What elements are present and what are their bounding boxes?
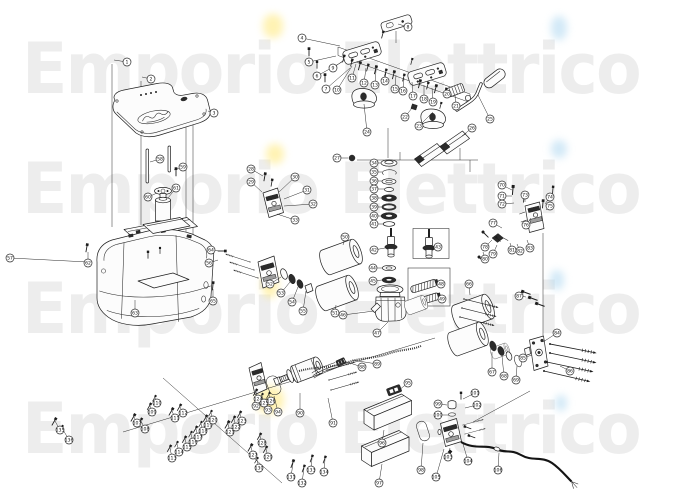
callout-number: 47 bbox=[374, 331, 380, 337]
screw bbox=[481, 230, 489, 238]
callout-number: 110 bbox=[153, 401, 162, 407]
callout-number: 30 bbox=[292, 175, 298, 181]
screw bbox=[365, 63, 369, 71]
callout-leader bbox=[343, 311, 374, 315]
callout-number: 84 bbox=[554, 331, 560, 337]
callout-number: 36 bbox=[371, 179, 377, 185]
callout-number: 14 bbox=[382, 79, 388, 85]
callout-number: 87 bbox=[516, 294, 522, 300]
callout-number: 54 bbox=[289, 300, 295, 306]
power-cable bbox=[461, 442, 572, 482]
callout-number: 122 bbox=[232, 425, 241, 431]
callout-number: 57 bbox=[7, 256, 13, 262]
terminal-connector bbox=[386, 384, 402, 396]
callout-number: 127 bbox=[249, 453, 258, 459]
callout-number: 49 bbox=[439, 297, 445, 303]
exploded-parts-diagram: 1234567891011121314151617181920212223242… bbox=[0, 0, 694, 500]
callout-number: 60 bbox=[145, 195, 151, 201]
valve-bracket bbox=[263, 188, 284, 218]
callout-number: 74 bbox=[547, 195, 553, 201]
callout-number: 43 bbox=[435, 245, 441, 251]
callout-number: 61 bbox=[173, 186, 179, 192]
callout-number: 106 bbox=[494, 468, 503, 474]
callout-number: 72 bbox=[499, 202, 505, 208]
callout-number: 102 bbox=[473, 403, 482, 409]
small-pump bbox=[438, 401, 462, 447]
leader-line bbox=[163, 378, 282, 483]
screw bbox=[263, 172, 267, 181]
callout-number: 28 bbox=[248, 167, 254, 173]
callout-number: 82 bbox=[517, 249, 523, 255]
screw bbox=[410, 58, 414, 65]
heater-element bbox=[143, 146, 190, 234]
callout-number: 134 bbox=[320, 470, 329, 476]
callout-number: 13 bbox=[372, 83, 378, 89]
callout-number: 80 bbox=[482, 257, 488, 263]
callout-number: 65 bbox=[210, 299, 216, 305]
callout-number: 25 bbox=[487, 117, 493, 123]
callout-leader bbox=[10, 258, 88, 262]
callout-number: 120 bbox=[209, 418, 218, 424]
callout-number: 58 bbox=[157, 157, 163, 163]
callout-number: 48 bbox=[438, 282, 444, 288]
callout-number: 59 bbox=[180, 165, 186, 171]
callout-number: 7 bbox=[325, 87, 328, 93]
callout-number: 133 bbox=[307, 468, 316, 474]
screw bbox=[198, 421, 203, 428]
callout-number: 79 bbox=[490, 252, 496, 258]
leader-line bbox=[473, 391, 530, 422]
bolt bbox=[549, 342, 597, 355]
callout-number: 86 bbox=[567, 369, 573, 375]
callout-number: 101 bbox=[471, 391, 480, 397]
pedal-left bbox=[415, 144, 445, 167]
callout-number: 130 bbox=[255, 466, 264, 472]
screw bbox=[208, 410, 213, 417]
callout-number: 103 bbox=[444, 455, 453, 461]
valve-body bbox=[371, 285, 406, 321]
callout-number: 2 bbox=[150, 77, 153, 83]
callout-number: 29 bbox=[248, 180, 254, 186]
bolt bbox=[464, 428, 485, 435]
callout-number: 22 bbox=[402, 115, 408, 121]
top-cover-plate bbox=[113, 83, 210, 137]
callout-number: 93 bbox=[265, 408, 271, 414]
callout-number: 3 bbox=[213, 111, 216, 117]
screw bbox=[308, 47, 311, 56]
pedal-right bbox=[440, 131, 470, 154]
callout-number: 64 bbox=[208, 248, 214, 254]
screw bbox=[460, 392, 462, 400]
lever-knob-right bbox=[421, 109, 446, 129]
water-tank bbox=[97, 229, 214, 325]
callout-number: 108 bbox=[141, 427, 150, 433]
parts bbox=[97, 14, 578, 488]
screw bbox=[433, 84, 438, 93]
parts-diagram-page: Emporio ElettricoEmporio ElettricoEmpori… bbox=[0, 0, 694, 500]
callout-number: 38 bbox=[371, 196, 377, 202]
callout-number: 66 bbox=[466, 282, 472, 288]
callout-number: 8 bbox=[407, 25, 410, 31]
screw bbox=[535, 302, 545, 308]
callout-number: 12 bbox=[361, 81, 367, 87]
callout-number: 6 bbox=[316, 74, 319, 80]
callout-number: 35 bbox=[371, 170, 377, 176]
plunger bbox=[385, 228, 397, 257]
callout-number: 41 bbox=[371, 222, 377, 228]
callout-number: 46 bbox=[340, 313, 346, 319]
callout-number: 31 bbox=[304, 188, 310, 194]
cable-wire-ends bbox=[572, 482, 579, 489]
box-part-lower bbox=[362, 431, 410, 467]
callout-number: 69 bbox=[513, 378, 519, 384]
screw bbox=[322, 455, 327, 463]
callout-number: 77 bbox=[490, 221, 496, 227]
box-part-upper bbox=[364, 394, 412, 430]
screw bbox=[188, 431, 193, 438]
callout-number: 20 bbox=[444, 92, 450, 98]
callout-number: 44 bbox=[370, 266, 376, 272]
callout-number: 78 bbox=[482, 245, 488, 251]
callout-number: 96 bbox=[379, 441, 385, 447]
callout-number: 85 bbox=[520, 356, 526, 362]
callout-number: 1 bbox=[126, 60, 129, 66]
cylinder bbox=[445, 321, 491, 358]
callout-number: 73 bbox=[522, 193, 528, 199]
callout-number: 67 bbox=[489, 370, 495, 376]
spring-1 bbox=[410, 278, 439, 293]
switch-plate-right bbox=[407, 62, 447, 86]
callout-number: 94 bbox=[275, 410, 281, 416]
callout-number: 76 bbox=[523, 223, 529, 229]
callout-number: 9 bbox=[332, 66, 335, 72]
cylinder bbox=[313, 274, 361, 313]
callout-number: 135 bbox=[56, 428, 65, 434]
bolt bbox=[330, 381, 359, 391]
callout-number: 55 bbox=[300, 309, 306, 315]
plunger-detail bbox=[423, 229, 435, 258]
callout-number: 97 bbox=[376, 481, 382, 487]
callout-number: 109 bbox=[148, 410, 157, 416]
screw bbox=[380, 30, 384, 38]
callout-number: 70 bbox=[499, 183, 505, 189]
bolt bbox=[233, 269, 259, 279]
callout-number: 136 bbox=[65, 438, 74, 444]
bolt bbox=[229, 261, 255, 271]
callout-number: 92 bbox=[253, 404, 259, 410]
callout-number: 50 bbox=[342, 235, 348, 241]
screw bbox=[192, 425, 198, 433]
callout-number: 21 bbox=[453, 104, 459, 110]
callout-number: 15 bbox=[392, 87, 398, 93]
callout-number: 90 bbox=[297, 411, 303, 417]
callout-number: 104 bbox=[464, 459, 473, 465]
callout-number: 131 bbox=[287, 475, 296, 481]
callout-number: 42 bbox=[371, 248, 377, 254]
callout-number: 107 bbox=[133, 421, 142, 427]
callout-number: 100 bbox=[434, 413, 443, 419]
callout-number: 68 bbox=[501, 374, 507, 380]
callout-number: 99 bbox=[435, 402, 441, 408]
callout-number: 19 bbox=[430, 100, 436, 106]
callout-leader bbox=[284, 204, 313, 206]
callouts: 1234567891011121314151617181920212223242… bbox=[6, 23, 574, 487]
callout-number: 128 bbox=[258, 441, 267, 447]
callout-number: 81 bbox=[509, 248, 515, 254]
callout-number: 23 bbox=[416, 124, 422, 130]
screw bbox=[270, 178, 274, 186]
screw bbox=[551, 186, 554, 194]
screw bbox=[166, 444, 172, 452]
bolt bbox=[462, 419, 483, 426]
callout-number: 33 bbox=[292, 218, 298, 224]
cable-grommet bbox=[494, 446, 501, 451]
callout-number: 5 bbox=[308, 60, 311, 66]
callout-number: 132 bbox=[298, 481, 307, 487]
callout-number: 118 bbox=[199, 429, 208, 435]
screw bbox=[174, 441, 179, 448]
callout-number: 11 bbox=[349, 76, 355, 82]
callout-number: 52 bbox=[267, 282, 273, 288]
callout-number: 123 bbox=[238, 419, 247, 425]
callout-number: 129 bbox=[264, 455, 273, 461]
callout-number: 18 bbox=[421, 97, 427, 103]
seal-stack bbox=[381, 160, 397, 283]
screw bbox=[467, 434, 475, 439]
callout-number: 37 bbox=[371, 187, 377, 193]
screw bbox=[528, 296, 538, 302]
screw bbox=[51, 417, 58, 426]
cylinder bbox=[317, 238, 365, 277]
callout-number: 34 bbox=[371, 161, 377, 167]
cylinder-small bbox=[403, 294, 429, 315]
screw bbox=[175, 167, 178, 176]
screw bbox=[439, 102, 443, 109]
callout-number: 63 bbox=[132, 311, 138, 317]
bolt bbox=[549, 351, 597, 364]
callout-number: 88 bbox=[359, 365, 365, 371]
callout-number: 26 bbox=[469, 126, 475, 132]
callout-leader bbox=[302, 38, 340, 46]
callout-number: 10 bbox=[334, 88, 340, 94]
screw bbox=[85, 243, 89, 252]
callout-number: 40 bbox=[371, 214, 377, 220]
callout-number: 75 bbox=[547, 204, 553, 210]
callout-number: 112 bbox=[179, 411, 188, 417]
switch-plate-left bbox=[342, 41, 382, 65]
screw bbox=[181, 435, 187, 443]
callout-number: 4 bbox=[301, 36, 304, 42]
callout-number: 89 bbox=[374, 362, 380, 368]
callout-number: 45 bbox=[370, 279, 376, 285]
callout-number: 32 bbox=[310, 202, 316, 208]
box-gasket bbox=[415, 420, 431, 442]
screw bbox=[230, 415, 236, 423]
square-nut bbox=[411, 104, 417, 110]
callout-number: 17 bbox=[410, 94, 416, 100]
screw bbox=[463, 425, 471, 430]
screw bbox=[316, 61, 318, 69]
callout-number: 56 bbox=[206, 261, 212, 267]
callout-number: 105 bbox=[432, 475, 441, 481]
callout-number: 91 bbox=[330, 421, 336, 427]
callout-number: 117 bbox=[194, 435, 203, 441]
callout-number: 113 bbox=[168, 456, 177, 462]
callout-leader bbox=[436, 449, 444, 477]
screw bbox=[425, 81, 429, 89]
ball-fitting bbox=[349, 155, 355, 161]
screw bbox=[309, 454, 314, 462]
callout-number: 126 bbox=[267, 399, 276, 405]
callout-number: 62 bbox=[85, 261, 91, 267]
bolt bbox=[225, 253, 251, 263]
callout-number: 24 bbox=[364, 130, 370, 136]
bolt bbox=[328, 371, 357, 381]
screw bbox=[541, 199, 544, 208]
callout-number: 27 bbox=[334, 156, 340, 162]
callout-number: 98 bbox=[418, 468, 424, 474]
callout-number: 83 bbox=[527, 246, 533, 252]
callout-number: 16 bbox=[400, 89, 406, 95]
screw bbox=[324, 73, 327, 82]
callout-number: 53 bbox=[278, 291, 284, 297]
callout-number: 95 bbox=[405, 381, 411, 387]
callout-number: 71 bbox=[499, 194, 505, 200]
callout-number: 51 bbox=[332, 311, 338, 317]
callout-number: 39 bbox=[371, 205, 377, 211]
